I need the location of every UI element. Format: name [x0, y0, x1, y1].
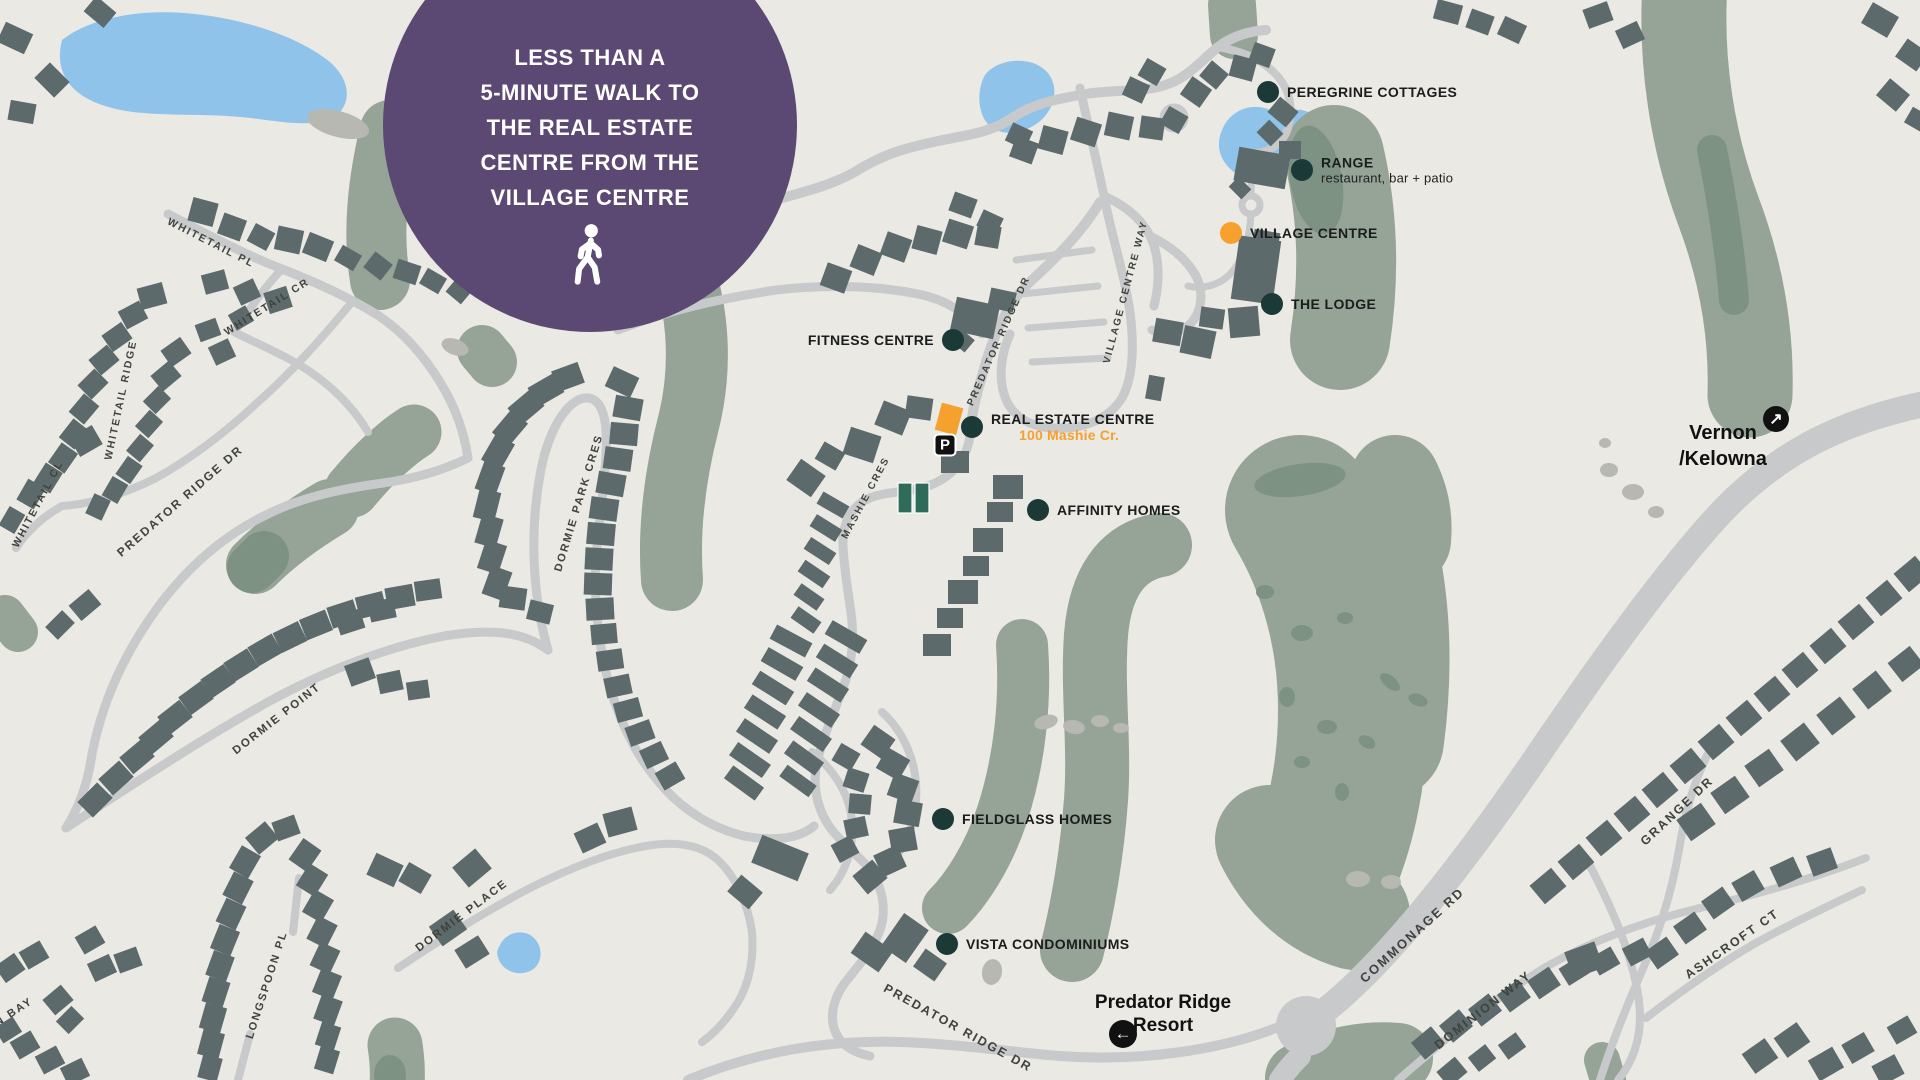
building	[1780, 723, 1820, 762]
walk-badge-line: LESS THAN A	[480, 40, 699, 75]
road	[1016, 250, 1092, 260]
golf-fairway	[1380, 560, 1390, 740]
building	[302, 232, 334, 262]
building	[590, 623, 618, 645]
building	[948, 580, 978, 604]
building	[1852, 671, 1892, 710]
building	[1152, 318, 1184, 346]
building	[414, 578, 443, 601]
water-body	[60, 12, 347, 123]
building	[289, 838, 322, 872]
building	[1808, 1047, 1844, 1080]
building	[195, 318, 222, 342]
building	[454, 935, 489, 968]
destination-vernon-kelowna: Vernon/Kelowna	[1679, 420, 1767, 472]
building	[1468, 1044, 1496, 1072]
golf-tree-spot	[1256, 585, 1274, 599]
golf-fairway	[948, 645, 1023, 908]
walk-badge-line: VILLAGE CENTRE	[480, 180, 699, 215]
building	[197, 1054, 223, 1080]
poi-label-affinity-homes: AFFINITY HOMES	[1057, 502, 1181, 518]
building	[1615, 21, 1645, 49]
building	[1876, 78, 1910, 112]
poi-label-real-estate-centre: REAL ESTATE CENTRE100 Mashie Cr.	[991, 411, 1155, 443]
destination-line: Predator Ridge	[1095, 991, 1231, 1014]
golf-fairway	[5, 615, 18, 632]
poi-label-peregrine-cottages: PEREGRINE COTTAGES	[1287, 84, 1457, 100]
terrain-blob	[1622, 484, 1644, 500]
poi-title: FIELDGLASS HOMES	[962, 811, 1112, 827]
building	[1888, 646, 1920, 682]
building	[586, 522, 616, 546]
building	[794, 583, 825, 611]
golf-tree-spot	[1279, 687, 1295, 707]
building	[1586, 820, 1623, 856]
road-loop	[1242, 196, 1260, 214]
map-canvas	[0, 0, 1920, 1080]
road	[234, 332, 368, 432]
poi-title: VISTA CONDOMINIUMS	[966, 936, 1130, 952]
building	[35, 1046, 66, 1075]
building	[1498, 1032, 1526, 1059]
poi-dot-peregrine-cottages	[1257, 81, 1279, 103]
building	[1179, 325, 1216, 359]
building	[366, 853, 403, 887]
building	[452, 848, 492, 887]
poi-dot-affinity-homes	[1027, 499, 1049, 521]
building	[1070, 117, 1102, 148]
building	[963, 556, 989, 576]
road	[398, 844, 752, 1042]
building	[603, 446, 634, 472]
building	[1904, 107, 1920, 134]
building	[7, 100, 36, 124]
building	[1774, 1022, 1811, 1058]
building	[1642, 772, 1679, 808]
walk-badge-line: 5-MINUTE WALK TO	[480, 75, 699, 110]
building	[1145, 375, 1165, 401]
building	[605, 366, 640, 398]
building	[1279, 141, 1301, 159]
building	[843, 816, 869, 840]
terrain-blob	[1600, 463, 1618, 477]
building	[1710, 776, 1749, 815]
terrain-blob	[1113, 723, 1129, 733]
building	[584, 573, 613, 596]
walk-badge-line: THE REAL ESTATE	[480, 110, 699, 145]
building	[602, 807, 637, 838]
road	[238, 1034, 250, 1080]
building	[1895, 39, 1920, 72]
building	[160, 337, 191, 367]
building	[842, 427, 881, 464]
building	[1433, 0, 1463, 25]
building	[398, 862, 432, 894]
poi-subtitle: 100 Mashie Cr.	[991, 427, 1155, 443]
building	[69, 589, 102, 621]
building	[589, 496, 620, 522]
poi-dot-real-estate-centre	[961, 416, 983, 438]
building	[1228, 306, 1261, 339]
golf-fairway	[482, 350, 492, 362]
building	[406, 680, 430, 701]
poi-dot-fieldglass-homes	[932, 808, 954, 830]
building	[831, 743, 860, 771]
parking-icon: P	[934, 434, 957, 457]
building	[1810, 628, 1847, 664]
golf-tree-spot	[1335, 783, 1349, 801]
poi-title: PEREGRINE COTTAGES	[1287, 84, 1457, 100]
building	[1139, 115, 1166, 140]
golf-tree-spot	[1291, 625, 1313, 641]
poi-dot-village-centre	[1220, 222, 1242, 244]
terrain-blob	[1381, 875, 1401, 889]
building	[911, 225, 942, 255]
building	[113, 946, 142, 973]
building	[987, 502, 1013, 522]
building	[1104, 112, 1134, 141]
golf-fairway	[1270, 840, 1355, 915]
golf-fairway	[1072, 545, 1160, 950]
terrain-blob	[980, 957, 1004, 986]
building	[1782, 652, 1819, 688]
poi-label-vista-condominiums: VISTA CONDOMINIUMS	[966, 936, 1130, 952]
building	[1199, 306, 1226, 329]
vernon-kelowna-arrow-icon: ↗	[1763, 406, 1789, 432]
building	[1871, 1054, 1904, 1080]
poi-label-range: RANGErestaurant, bar + patio	[1321, 155, 1453, 186]
building	[1861, 2, 1899, 38]
walk-badge-line: CENTRE FROM THE	[480, 145, 699, 180]
building	[804, 537, 837, 565]
building	[584, 547, 613, 570]
building	[791, 606, 822, 634]
terrain-blob	[1346, 871, 1370, 887]
building	[810, 514, 843, 542]
building	[201, 269, 229, 295]
golf-tree-spot	[1294, 756, 1310, 768]
building	[609, 422, 639, 446]
poi-label-the-lodge: THE LODGE	[1291, 296, 1376, 312]
building	[937, 608, 963, 628]
road	[1028, 322, 1104, 328]
poi-label-village-centre: VILLAGE CENTRE	[1250, 225, 1378, 241]
building	[1614, 796, 1651, 832]
terrain-blob	[1091, 715, 1109, 727]
building	[596, 648, 625, 671]
golf-trees	[252, 556, 264, 568]
building	[315, 1021, 341, 1050]
building	[1887, 1015, 1918, 1044]
building	[312, 968, 342, 1000]
poi-title: AFFINITY HOMES	[1057, 502, 1181, 518]
tennis-court	[915, 483, 929, 513]
golf-fairway	[1232, 5, 1234, 35]
map-stage: WHITETAIL PLWHITETAIL CRWHITETAIL RIDGEW…	[0, 0, 1920, 1080]
building	[1497, 16, 1527, 44]
destination-line: /Kelowna	[1679, 446, 1767, 472]
building	[1841, 1032, 1875, 1064]
walking-person-icon	[564, 223, 616, 287]
roundabout	[1276, 996, 1336, 1056]
building	[1701, 887, 1735, 920]
building	[1558, 844, 1595, 880]
building	[574, 823, 607, 854]
poi-title: RANGE	[1321, 155, 1453, 171]
building	[893, 799, 923, 827]
poi-dot-the-lodge	[1261, 293, 1283, 315]
building	[1866, 580, 1903, 616]
building	[849, 244, 882, 276]
poi-title: FITNESS CENTRE	[808, 332, 934, 348]
building	[208, 338, 236, 365]
predator-ridge-resort-arrow-icon: ←	[1109, 1020, 1137, 1048]
road	[1022, 286, 1098, 294]
building	[1122, 76, 1150, 103]
building	[143, 386, 171, 414]
golf-tree-spot	[1337, 612, 1353, 624]
building	[313, 994, 343, 1026]
building	[199, 1002, 227, 1033]
building	[87, 954, 117, 982]
building	[1465, 8, 1494, 35]
terrain-blob	[1599, 438, 1611, 448]
building	[585, 597, 614, 620]
poi-title: VILLAGE CENTRE	[1250, 225, 1378, 241]
building	[60, 1058, 90, 1080]
water-body	[497, 932, 540, 973]
golf-fairway	[1395, 480, 1407, 540]
building	[75, 925, 106, 954]
building	[45, 610, 75, 640]
poi-label-fitness-centre: FITNESS CENTRE	[808, 332, 934, 348]
building	[973, 528, 1003, 552]
building	[923, 634, 951, 656]
building	[1754, 676, 1791, 712]
building	[874, 400, 912, 435]
building	[948, 191, 977, 218]
building	[993, 475, 1023, 499]
building	[1726, 700, 1763, 736]
building	[247, 223, 276, 251]
road	[1032, 358, 1108, 362]
golf-tree-spot	[1317, 720, 1337, 734]
poi-dot-vista-condominiums	[936, 933, 958, 955]
building	[1742, 1038, 1779, 1074]
building	[19, 940, 50, 969]
real-estate-centre-building	[935, 403, 963, 436]
poi-title: THE LODGE	[1291, 296, 1376, 312]
building	[274, 226, 304, 255]
building	[1816, 697, 1856, 736]
building	[0, 22, 33, 55]
building	[1838, 604, 1875, 640]
building	[905, 395, 934, 420]
building	[473, 488, 502, 522]
building	[817, 491, 850, 518]
building	[1582, 1, 1613, 29]
building	[1894, 556, 1920, 592]
walk-badge-text: LESS THAN A5-MINUTE WALK TOTHE REAL ESTA…	[480, 40, 699, 215]
building	[786, 459, 825, 498]
terrain-blob	[1648, 506, 1664, 518]
water-body	[979, 61, 1054, 133]
building	[376, 670, 404, 695]
poi-dot-fitness-centre	[942, 329, 964, 351]
building	[1530, 868, 1567, 904]
poi-label-fieldglass-homes: FIELDGLASS HOMES	[962, 811, 1112, 827]
building	[798, 560, 831, 588]
building	[314, 1046, 340, 1075]
road	[66, 632, 548, 828]
building	[880, 231, 913, 262]
building	[150, 361, 181, 392]
poi-subtitle: restaurant, bar + patio	[1321, 171, 1453, 186]
golf-fairway	[1300, 1057, 1398, 1078]
building	[942, 219, 974, 250]
building	[197, 1029, 225, 1060]
building	[815, 441, 846, 470]
building	[1436, 1057, 1467, 1080]
building	[848, 793, 872, 815]
building	[135, 410, 163, 438]
building	[1037, 125, 1068, 155]
tennis-court	[898, 483, 912, 513]
building	[612, 395, 643, 422]
poi-title: REAL ESTATE CENTRE	[991, 411, 1155, 427]
poi-dot-range	[1291, 159, 1313, 181]
building	[526, 599, 554, 624]
destination-line: Vernon	[1679, 420, 1767, 446]
building	[419, 268, 447, 295]
building	[1744, 749, 1783, 788]
